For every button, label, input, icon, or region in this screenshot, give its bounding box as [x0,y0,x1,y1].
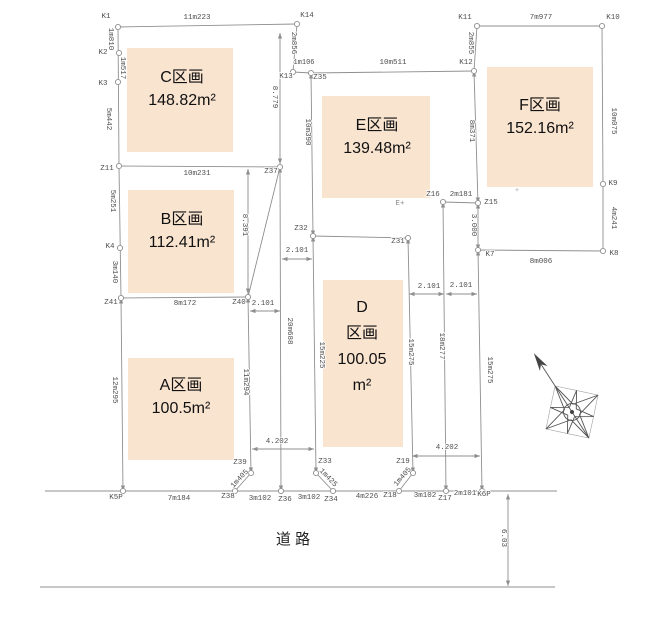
measurement-label: 8.391 [240,214,248,237]
boundary-line [478,250,603,251]
survey-point [115,79,120,84]
parcel-c-label: 148.82m² [148,92,216,109]
point-label: K4 [105,243,115,251]
measurement-label: 3.000 [469,214,477,237]
point-label: Z15 [484,199,498,207]
parcel-d-label: m² [353,377,372,394]
survey-point [278,488,283,493]
survey-point [405,235,410,240]
dimension-line [313,236,316,473]
boundary-line [119,166,121,298]
measurement-label: 2.101 [286,247,309,255]
point-label: Z16 [426,191,440,199]
survey-point [120,488,125,493]
point-label: K12 [459,59,473,67]
measurement-label: 12m295 [110,376,118,404]
e-point-marker: E+ [395,200,405,208]
point-label: Z37 [264,168,278,176]
point-label: K13 [279,73,293,81]
measurement-label: 15m225 [317,341,325,369]
survey-point [330,488,335,493]
measurement-label: 11m294 [241,368,249,396]
survey-point [475,200,480,205]
survey-point [440,199,445,204]
survey-point [600,181,605,186]
point-label: Z34 [324,496,338,504]
measurement-label: 6.03 [499,529,507,548]
measurement-label: 3m102 [414,492,437,500]
measurement-label: 7m184 [168,495,191,503]
parcel-d-label: 100.05 [338,351,387,368]
point-label: Z35 [313,74,327,82]
survey-point [118,295,123,300]
survey-point [310,233,315,238]
measurement-label: 1m106 [293,59,314,67]
parcel-e-label: 139.48m² [343,140,411,157]
boundary-line [118,24,297,27]
survey-point [277,164,282,169]
survey-point [471,68,476,73]
survey-point [245,294,250,299]
point-label: K1 [101,13,111,21]
measurement-label: 2.101 [450,282,473,290]
compass-needle [540,363,588,437]
measurement-label: 10m075 [609,107,617,135]
measurement-label: 10m231 [183,170,211,178]
measurement-label: 8.779 [270,86,278,109]
point-label: K14 [300,12,314,20]
point-label: Z39 [233,459,247,467]
measurement-label: 4.202 [436,444,459,452]
boundary-line [602,26,603,184]
compass-arrowhead [530,351,547,371]
measurement-label: 20m688 [285,317,293,344]
survey-point [475,247,480,252]
point-label: Z33 [318,458,332,466]
point-label: K7 [485,251,494,259]
point-label: K8 [609,250,618,258]
point-label: K5P [109,494,123,502]
survey-point [294,21,299,26]
point-label: Z17 [438,495,452,503]
measurement-label: 3m140 [110,261,118,284]
measurement-label: 4m241 [609,207,617,230]
parcel-b-label: B区画 [161,211,204,228]
measurement-label: 8m006 [530,258,553,266]
point-label: Z38 [221,493,235,501]
survey-point [115,24,120,29]
boundary-line [311,71,474,73]
measurement-label: 5m251 [108,190,116,213]
dimension-line [121,298,123,491]
survey-point [443,488,448,493]
measurement-label: 2m855 [466,32,474,55]
measurement-label: 8m172 [174,300,197,308]
measurement-label: 10m390 [303,118,311,146]
measurement-label: 11m223 [183,14,211,22]
point-label: Z40 [232,299,246,307]
point-label: Z41 [104,299,118,307]
point-label: Z36 [278,496,292,504]
point-label: K10 [606,14,620,22]
survey-point [117,245,122,250]
measurement-label: 2m101 [454,490,477,498]
measurement-label: 7m977 [530,14,553,22]
dimension-line [478,250,482,491]
measurement-label: 2m181 [450,191,473,199]
land-plat-page: K1K2K3Z11K4Z41K5PK14K13Z35K12K11K10K9K8K… [0,0,660,621]
boundary-line [118,27,119,166]
measurement-label: 1m517 [118,57,126,80]
parcel-a-label: 100.5m² [152,400,211,417]
point-label: Z32 [294,225,308,233]
measurement-label: 8m371 [467,120,475,143]
parcel-e-label: E区画 [356,117,399,134]
parcel-d-label: D [356,299,368,316]
point-label: K3 [98,80,108,88]
parcel-f-label: F区画 [519,97,561,114]
compass-center-dot [569,409,575,415]
measurement-label: 4.202 [266,438,289,446]
measurement-label: 5m442 [104,108,112,131]
f-point-marker: + [515,187,520,195]
measurement-label: 1m810 [106,28,114,51]
compass-rose-icon [508,336,615,455]
parcel-d-label: 区画 [346,325,378,342]
measurement-label: 3m102 [298,494,321,502]
measurement-label: 10m511 [379,59,407,67]
measurement-label: 18m277 [437,332,445,359]
measurement-label: 1m405 [230,468,252,490]
boundary-line [119,166,280,167]
point-label: Z11 [100,165,114,173]
boundary-line [443,202,478,203]
point-label: Z19 [396,458,410,466]
measurement-label: 4m226 [356,493,379,501]
parcel-a-label: A区画 [160,377,203,394]
measurement-label: 2.101 [418,283,441,291]
measurement-label: 3m102 [249,495,272,503]
point-label: K9 [608,180,617,188]
survey-point [396,488,401,493]
measurement-label: 15m275 [485,356,493,384]
measurement-label: 2m856 [289,32,297,55]
point-label: Z18 [383,492,397,500]
dimension-line [311,73,313,236]
plat-svg: K1K2K3Z11K4Z41K5PK14K13Z35K12K11K10K9K8K… [0,0,660,621]
point-label: K11 [458,14,472,22]
survey-point [116,50,121,55]
survey-point [600,248,605,253]
survey-point [116,163,121,168]
parcel-c-label: C区画 [160,69,204,86]
parcel-b-label: 112.41m² [149,234,216,251]
boundary-line [248,167,280,297]
survey-point [474,23,479,28]
point-label: K6P [477,491,491,499]
measurement-label: 2.101 [252,300,275,308]
survey-point [599,23,604,28]
measurement-label: 15m275 [406,338,414,366]
boundary-line [121,297,248,298]
road-label: 道 路 [276,531,310,548]
parcel-f-label: 152.16m² [506,120,574,137]
point-label: Z31 [391,238,405,246]
